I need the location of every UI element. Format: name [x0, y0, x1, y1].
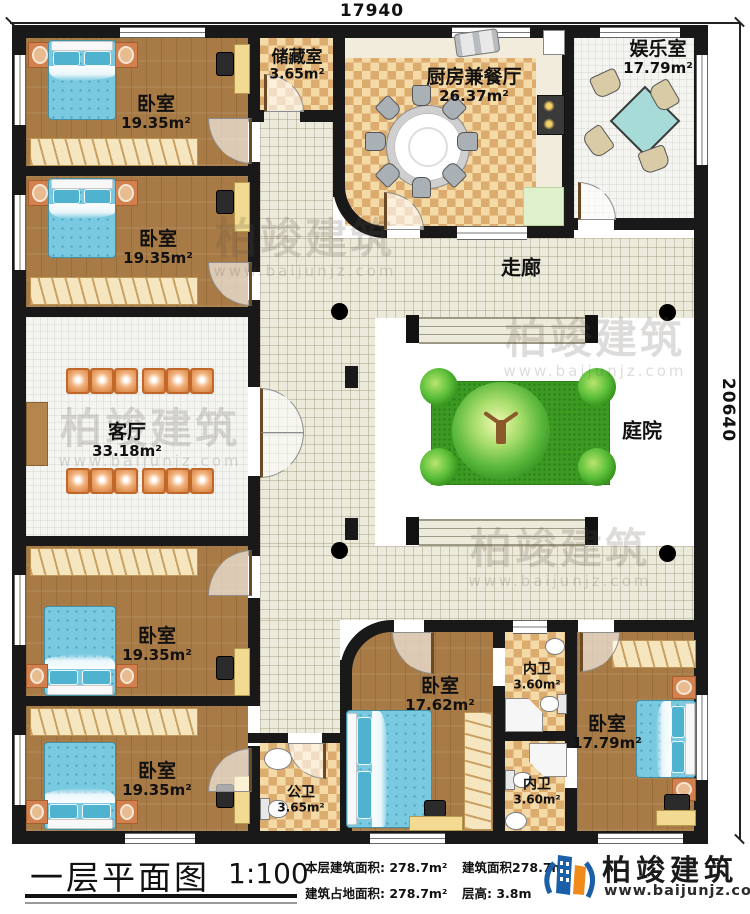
fridge: [543, 30, 565, 55]
bed: [48, 40, 116, 120]
window: [370, 833, 445, 844]
brand-logo-icon: [540, 847, 602, 907]
dimension-line-top: [10, 22, 740, 24]
room-label-bedroom-tl2: 卧室 19.35m²: [123, 229, 193, 267]
wall-stub: [345, 366, 358, 388]
seat-cushion: [142, 468, 166, 494]
wall: [248, 476, 260, 546]
room-label-inner-bath1: 内卫 3.60m²: [513, 662, 560, 691]
room-label-inner-bath2: 内卫 3.60m²: [513, 777, 560, 806]
wall: [12, 166, 248, 176]
seat-cushion: [66, 368, 90, 394]
wall: [12, 536, 260, 546]
dining-chair: [457, 132, 478, 151]
corridor-bottom-floor: [260, 546, 694, 620]
wardrobe: [30, 548, 198, 576]
seat-cushion: [66, 468, 90, 494]
room-label-kitchen: 厨房兼餐厅 26.37m²: [426, 67, 521, 105]
step-post: [585, 315, 598, 343]
toilet: [540, 696, 559, 712]
column: [331, 303, 348, 320]
wall: [12, 696, 248, 706]
bed: [636, 700, 696, 778]
wall: [493, 686, 505, 831]
room-label-entertainment: 娱乐室 17.79m²: [623, 39, 693, 77]
dimension-line-right: [739, 22, 741, 840]
side-table: [523, 187, 564, 226]
column: [331, 542, 348, 559]
seat-cushion: [190, 468, 214, 494]
room-label-bedroom-bl2: 卧室 19.35m²: [122, 761, 192, 799]
wall: [248, 317, 260, 387]
desk: [234, 44, 250, 94]
wall: [333, 25, 345, 197]
desk-chair: [216, 52, 234, 76]
building-logo-icon: [540, 847, 602, 907]
wall: [614, 620, 708, 632]
wall: [248, 733, 288, 743]
window: [513, 620, 547, 634]
bed: [48, 178, 116, 258]
desk: [234, 182, 250, 232]
room-label-living: 客厅 33.18m²: [92, 422, 162, 460]
window: [696, 695, 708, 780]
room-label-bedroom-tl1: 卧室 19.35m²: [121, 94, 191, 132]
step-post: [406, 517, 419, 545]
window: [14, 55, 26, 125]
plan-scale: 1:100: [228, 857, 309, 890]
nightstand: [114, 180, 138, 206]
room-label-corridor: 走廊: [501, 252, 541, 281]
wall: [547, 620, 578, 632]
wall: [493, 632, 505, 648]
room-label-bedroom-bl1: 卧室 19.35m²: [122, 626, 192, 664]
window: [14, 195, 26, 270]
seat-cushion: [190, 368, 214, 394]
hallway-top-floor: [260, 110, 333, 238]
desk: [409, 816, 463, 831]
dimension-top: 17940: [332, 1, 412, 21]
bathroom-sink: [264, 748, 292, 770]
courtyard-step-top: [419, 317, 585, 344]
seat-cushion: [114, 368, 138, 394]
window: [120, 27, 205, 38]
window: [14, 735, 26, 805]
wall: [493, 731, 577, 741]
desk-chair: [216, 190, 234, 214]
window: [696, 55, 708, 165]
desk-chair: [424, 800, 446, 817]
wall: [562, 218, 578, 230]
desk-chair: [664, 794, 690, 811]
bush: [420, 448, 458, 486]
wall: [424, 620, 513, 632]
stat-storey-height: 层高: 3.8m: [462, 883, 532, 902]
bed: [346, 710, 432, 828]
wardrobe: [30, 138, 198, 166]
stat-footprint-area: 建筑占地面积: 278.7m²: [305, 883, 447, 902]
desk-chair: [216, 656, 234, 680]
step-post: [406, 315, 419, 343]
tv-cabinet: [26, 402, 48, 466]
dimension-right: 20640: [718, 370, 738, 450]
wall: [565, 788, 577, 831]
seat-cushion: [166, 468, 190, 494]
dining-chair: [412, 177, 431, 198]
nightstand: [116, 800, 138, 824]
hallway-bottom-floor: [260, 620, 340, 733]
wall: [420, 226, 457, 238]
wall: [12, 25, 26, 844]
room-label-public-bath: 公卫 3.65m²: [277, 785, 324, 814]
bush: [578, 448, 616, 486]
corridor-top-floor: [260, 238, 694, 318]
window: [600, 27, 680, 38]
title-underline: [25, 894, 297, 898]
seat-cushion: [142, 368, 166, 394]
nightstand: [114, 42, 138, 68]
window: [125, 833, 195, 844]
room-label-bedroom-bm: 卧室 17.62m²: [405, 676, 475, 714]
title-bar: 一层平面图 1:100 本层建筑面积: 278.7m² 建筑占地面积: 278.…: [0, 845, 750, 914]
wall: [12, 307, 260, 317]
wardrobe: [612, 640, 696, 668]
column: [659, 304, 676, 321]
window: [14, 575, 26, 645]
bed: [44, 606, 116, 696]
column: [659, 545, 676, 562]
title-underline-2: [25, 902, 297, 904]
window: [598, 833, 683, 844]
nightstand: [672, 676, 696, 699]
desk: [234, 648, 250, 696]
seat-cushion: [114, 468, 138, 494]
desk: [656, 810, 696, 826]
nightstand: [116, 664, 138, 688]
room-label-storage: 储藏室 3.65m²: [269, 49, 324, 84]
seat-cushion: [90, 368, 114, 394]
bed: [44, 742, 116, 830]
plan-title: 一层平面图: [30, 851, 210, 899]
seat-cushion: [90, 468, 114, 494]
nightstand: [26, 800, 48, 824]
wall: [614, 218, 708, 230]
floor-plan-canvas: 柏竣建筑 www.baijunjz.com 柏竣建筑 www.baijunjz.…: [0, 0, 750, 914]
bush: [420, 368, 458, 406]
window: [457, 226, 527, 240]
room-label-bedroom-br: 卧室 17.79m²: [572, 714, 642, 752]
dining-chair: [365, 132, 386, 151]
brand-url: www.baijunjz.com: [604, 883, 750, 899]
stat-floor-area: 本层建筑面积: 278.7m²: [305, 857, 447, 876]
bathroom-sink: [545, 638, 565, 655]
courtyard-step-bottom: [419, 519, 585, 546]
step-post: [585, 517, 598, 545]
wardrobe: [464, 712, 492, 830]
nightstand: [26, 664, 48, 688]
stove: [537, 95, 565, 135]
wardrobe: [30, 708, 198, 736]
seat-cushion: [166, 368, 190, 394]
wall-curved: [333, 186, 387, 238]
bathroom-sink: [505, 812, 527, 830]
bush: [578, 368, 616, 406]
wardrobe: [30, 277, 198, 305]
wall-stub: [345, 518, 358, 540]
room-label-courtyard: 庭院: [622, 415, 662, 444]
